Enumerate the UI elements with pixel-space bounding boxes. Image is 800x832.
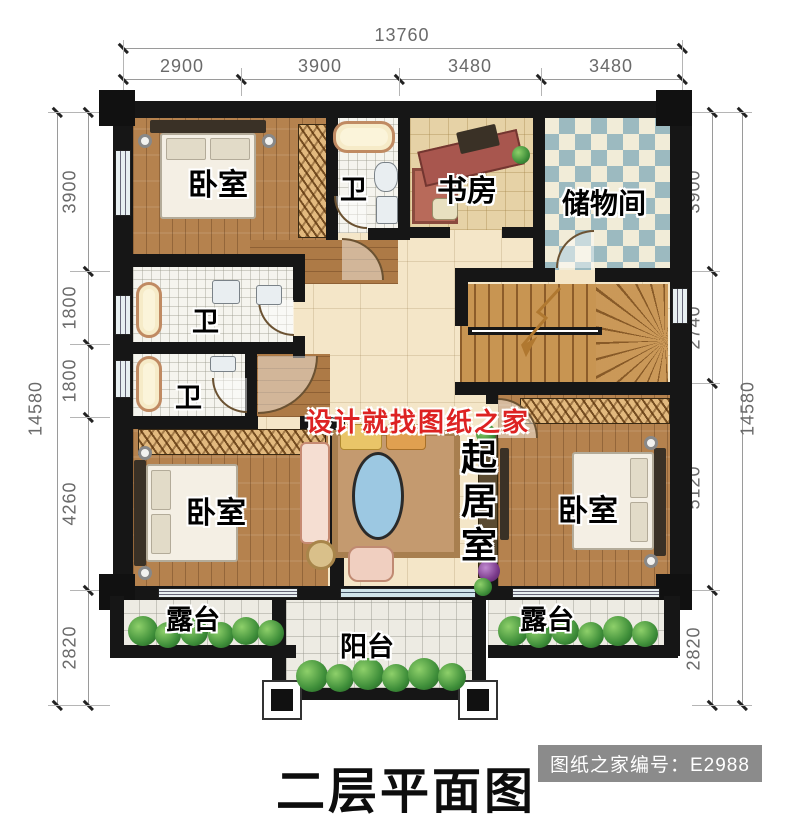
wall-stair-left	[455, 268, 468, 326]
room-label-bedroom-top-left: 卧室	[188, 160, 248, 204]
nightstand	[138, 446, 152, 460]
plant-terrace	[603, 616, 633, 646]
room-label-study: 书房	[437, 166, 497, 210]
dim-left-seg-4: 2820	[60, 616, 81, 680]
dim-extension	[123, 40, 124, 96]
plant-study	[512, 146, 530, 164]
bathtub	[136, 356, 162, 412]
dim-extension	[692, 705, 752, 706]
dim-extension	[399, 68, 400, 96]
room-label-living: 起居室	[450, 438, 502, 570]
balcony-column	[262, 680, 302, 720]
room-label-bath-top: 卫	[340, 168, 367, 207]
plant-terrace	[128, 616, 158, 646]
wall-outer-right	[670, 101, 692, 600]
wardrobe-bottom-right	[520, 398, 670, 424]
wall-bath-divider	[113, 342, 305, 354]
plant-terrace	[232, 617, 260, 645]
dim-left-seg-3: 4260	[60, 472, 81, 536]
plant-terrace	[258, 620, 284, 646]
wall-stair-top	[455, 268, 555, 282]
coffee-table	[352, 452, 404, 540]
bathtub	[136, 282, 162, 338]
wall-study-storage	[533, 118, 545, 268]
corner-post	[656, 90, 692, 126]
plant-balcony	[296, 660, 328, 692]
dim-top-seg-3: 3480	[561, 56, 661, 77]
dim-extension	[70, 417, 110, 418]
wall-bath-top-bottom	[326, 228, 336, 240]
plant-living	[474, 578, 492, 596]
dim-top-seg-0: 2900	[132, 56, 232, 77]
plant-balcony	[326, 664, 354, 692]
dim-extension	[692, 383, 720, 384]
wall-study-bottom	[398, 227, 450, 238]
plant-balcony	[382, 664, 410, 692]
dim-extension	[70, 271, 110, 272]
sliding-door-living	[340, 588, 476, 598]
dim-left-seg-1: 1800	[60, 276, 81, 340]
nightstand	[138, 134, 152, 148]
armchair	[348, 546, 394, 582]
corner-post	[99, 90, 135, 126]
nightstand	[138, 566, 152, 580]
wall-hall-left	[293, 254, 305, 302]
window-bath-middle	[115, 295, 131, 335]
dim-left-total: 14580	[26, 377, 47, 441]
bed-pillows	[630, 502, 648, 542]
terrace-left-rail	[110, 645, 296, 658]
dim-left-seg-2: 1800	[60, 349, 81, 413]
room-label-bedroom-bottom-right: 卧室	[558, 486, 618, 530]
room-label-balcony: 阳台	[340, 625, 394, 664]
bed-pillows	[151, 514, 171, 554]
window-stair-landing	[672, 288, 688, 324]
bed-headboard	[150, 120, 266, 133]
dim-top-total: 13760	[352, 25, 452, 46]
bed-pillows	[151, 470, 171, 510]
bed-pillows	[630, 458, 648, 498]
dim-line	[57, 112, 58, 705]
watermark: 设计就找图纸之家	[306, 402, 530, 439]
dim-extension	[692, 590, 720, 591]
toilet	[374, 162, 398, 192]
room-label-terrace-right: 露台	[520, 598, 574, 637]
wardrobe-bottom-left	[138, 429, 326, 455]
room-label-terrace-left: 露台	[166, 598, 220, 637]
plan-number-badge: 图纸之家编号：E2988	[538, 745, 762, 782]
wall-study-bottom	[502, 227, 545, 238]
round-rug	[306, 540, 336, 570]
room-label-bath-middle: 卫	[192, 300, 219, 339]
window-bedroom-tl	[115, 150, 131, 216]
wall-bath-study	[398, 118, 410, 240]
dim-extension	[48, 705, 110, 706]
nightstand	[644, 436, 658, 450]
balcony-wall-right	[472, 600, 486, 690]
bathtub	[333, 121, 395, 153]
dim-extension	[692, 271, 720, 272]
plant-terrace	[578, 622, 604, 648]
dim-extension	[692, 112, 752, 113]
dim-top-seg-2: 3480	[420, 56, 520, 77]
bed-headboard	[654, 448, 666, 556]
balcony-column	[458, 680, 498, 720]
terrace-right-rail	[488, 645, 678, 658]
terrace-right-end	[664, 596, 680, 656]
nightstand	[644, 554, 658, 568]
dim-line	[712, 112, 713, 705]
wall-bedroom-tl-bottom	[113, 254, 305, 267]
plant-terrace	[632, 621, 658, 647]
room-label-bath-lower: 卫	[175, 376, 202, 415]
dim-line	[123, 48, 682, 49]
dim-right-seg-3: 2820	[684, 617, 705, 681]
nightstand	[262, 134, 276, 148]
room-label-storage: 储物间	[562, 182, 646, 222]
bed-pillows	[210, 138, 250, 160]
dim-line	[88, 112, 89, 705]
dim-extension	[682, 40, 683, 96]
floor-plan-page: 13760 2900 3900 3480 3480 14580 3900 180…	[0, 0, 800, 832]
plant-balcony	[438, 663, 466, 691]
terrace-left-end	[110, 596, 124, 656]
bed-headboard	[134, 460, 146, 566]
dim-extension	[70, 344, 110, 345]
window-bedroom-br	[512, 588, 660, 598]
dim-left-seg-0: 3900	[60, 160, 81, 224]
dim-top-seg-1: 3900	[270, 56, 370, 77]
dim-extension	[241, 68, 242, 96]
window-bedroom-bl	[158, 588, 298, 598]
dim-extension	[541, 68, 542, 96]
wall-outer-top	[113, 101, 692, 118]
window-bath-lower	[115, 360, 131, 398]
wall-bedroom-bl-top	[113, 416, 258, 429]
plant-balcony	[408, 658, 440, 690]
sink	[210, 356, 236, 372]
stair-direction-arrow	[460, 284, 668, 382]
sink	[256, 285, 282, 305]
page-title: 二层平面图	[276, 752, 536, 823]
sofa	[300, 442, 330, 544]
dim-right-total: 14580	[738, 377, 759, 441]
bed-pillows	[166, 138, 206, 160]
wall-storage-bottom	[595, 268, 692, 282]
room-label-bedroom-bottom-left: 卧室	[186, 488, 246, 532]
shower-tray	[376, 196, 398, 224]
